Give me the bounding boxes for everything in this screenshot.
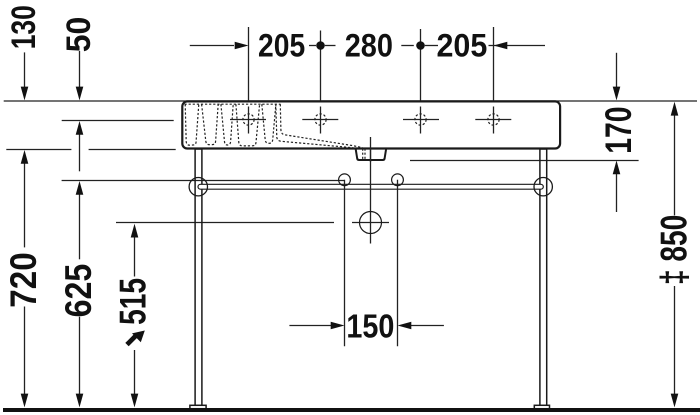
svg-text:50: 50 <box>60 17 98 53</box>
svg-text:515: 515 <box>113 278 154 325</box>
svg-text:280: 280 <box>345 28 393 64</box>
svg-text:170: 170 <box>598 106 639 153</box>
svg-text:205: 205 <box>258 28 305 64</box>
svg-text:‡ 850: ‡ 850 <box>654 215 695 285</box>
svg-text:150: 150 <box>346 308 394 345</box>
svg-text:720: 720 <box>3 252 44 308</box>
svg-text:130: 130 <box>5 5 43 49</box>
svg-text:625: 625 <box>58 264 99 318</box>
svg-text:205: 205 <box>437 28 488 64</box>
